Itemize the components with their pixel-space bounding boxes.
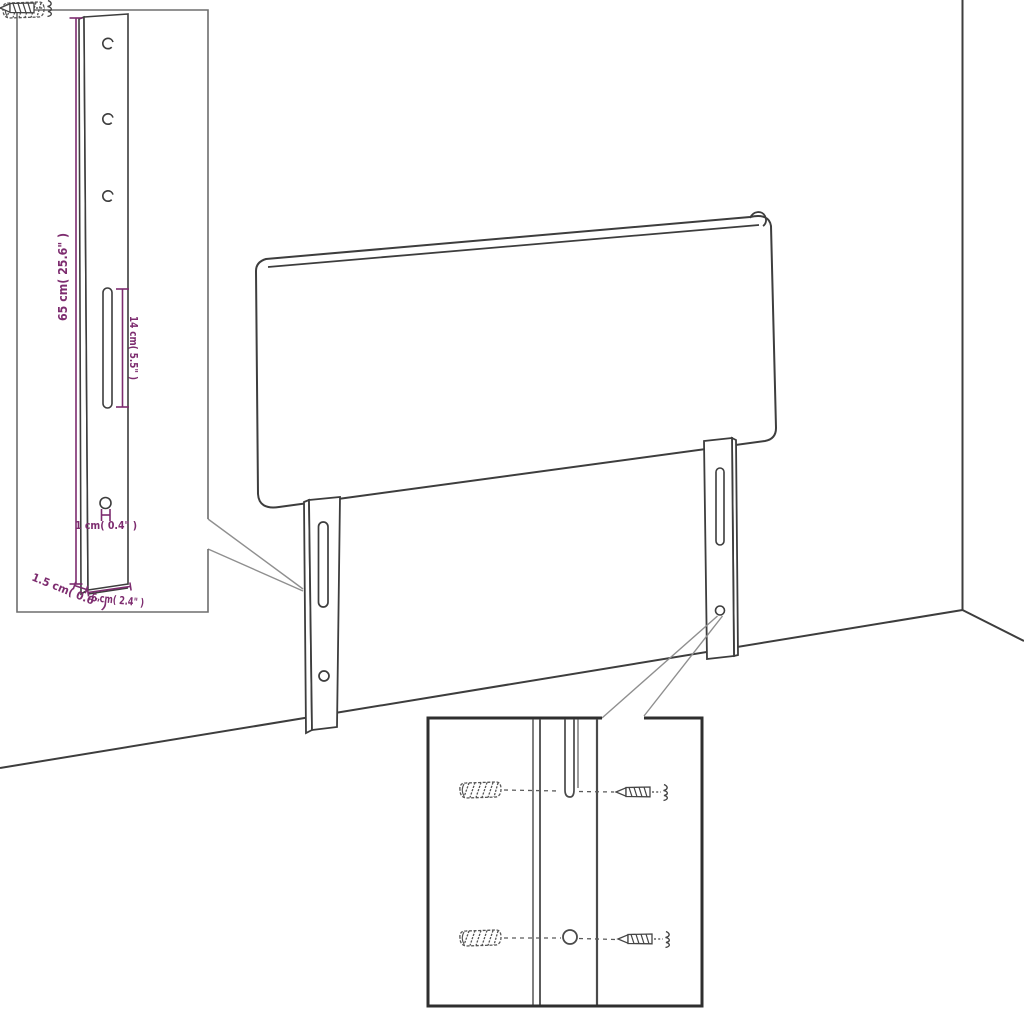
screw-bottom	[618, 932, 669, 948]
wall-plug-bottom	[460, 930, 501, 946]
headboard-panel-outline	[256, 216, 776, 507]
headboard-left-leg	[304, 497, 340, 733]
left-leg-front-face	[309, 497, 340, 730]
assembly-diagram-page: 65 cm( 25.6" ) 14 cm( 5.5" ) 1 cm( 0.4" …	[0, 0, 1024, 1024]
mount-leg-hole	[563, 930, 577, 944]
dim-label-hole-diameter: 1 cm( 0.4" )	[75, 520, 137, 532]
leg-detail-callout-leaders	[208, 519, 303, 591]
callout-leader-right	[644, 616, 723, 716]
inset-leg-front-face	[84, 14, 128, 590]
dashed-guide-bottom-right	[579, 939, 616, 940]
inset-leg	[79, 14, 128, 594]
leg-detail-inset: 65 cm( 25.6" ) 14 cm( 5.5" ) 1 cm( 0.4" …	[17, 10, 208, 613]
right-leg-front-face	[704, 438, 734, 659]
screw-top	[616, 785, 667, 801]
dim-label-leg-height: 65 cm( 25.6" )	[56, 233, 70, 321]
mount-leg-slot	[565, 719, 574, 797]
dim-label-slot-length: 14 cm( 5.5" )	[127, 316, 139, 380]
headboard-panel	[256, 212, 776, 507]
inset-mounting-leg	[533, 719, 597, 1005]
dashed-guides	[504, 790, 616, 940]
wall-plug-top	[460, 782, 501, 798]
assembly-diagram-canvas: 65 cm( 25.6" ) 14 cm( 5.5" ) 1 cm( 0.4" …	[0, 0, 1024, 1024]
floor-line-left	[0, 610, 963, 768]
dashed-guide-top-right	[579, 792, 614, 793]
callout-leader-upper	[208, 519, 303, 589]
dashed-guide-top-left	[504, 790, 560, 791]
callout-leader-lower	[208, 549, 303, 591]
headboard-right-leg	[704, 438, 738, 659]
floor-line-right	[963, 610, 1024, 641]
